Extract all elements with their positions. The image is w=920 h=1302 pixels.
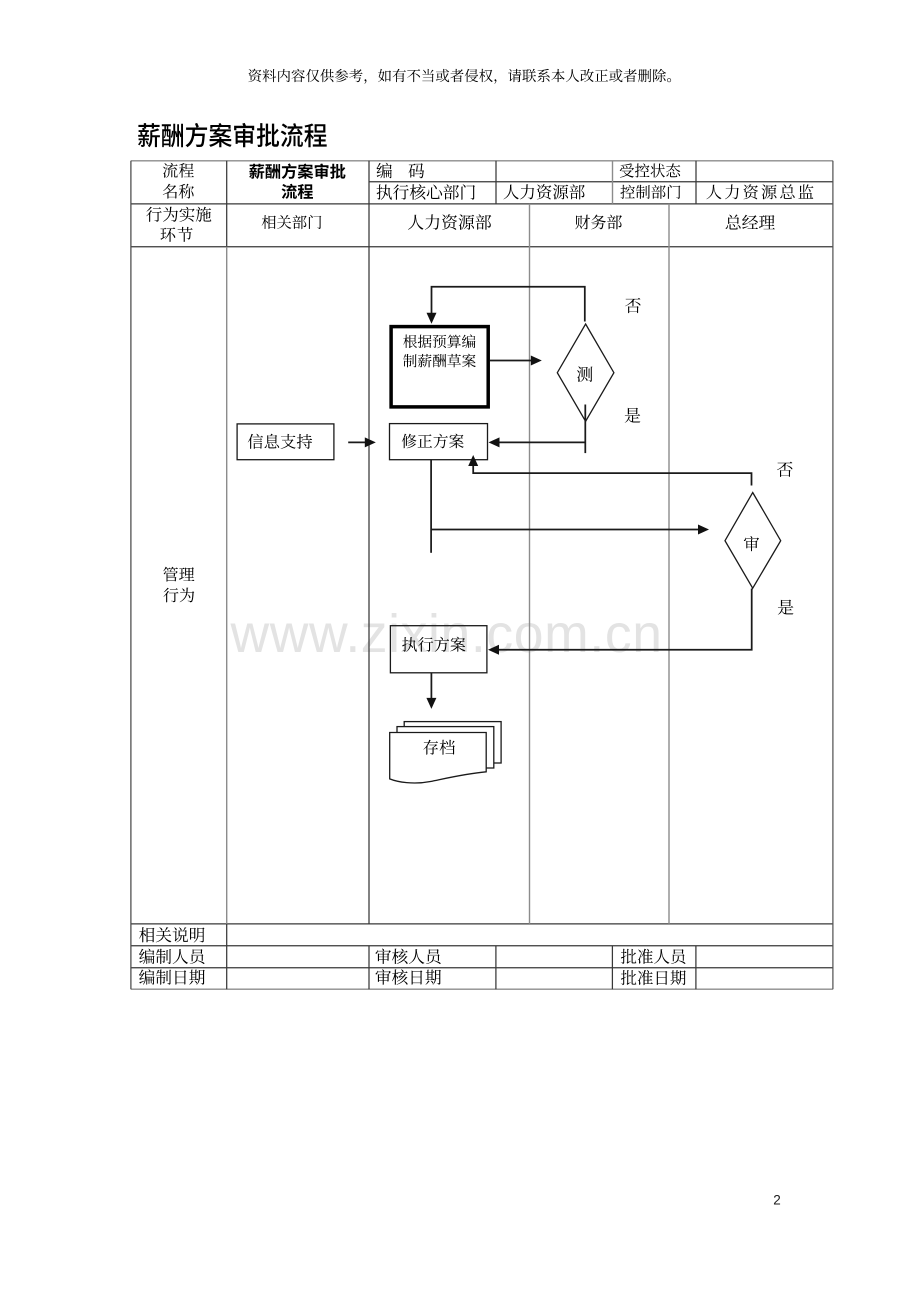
svg-text:www.zixin.com.cn: www.zixin.com.cn (230, 605, 663, 664)
svg-text:2: 2 (773, 1193, 781, 1208)
